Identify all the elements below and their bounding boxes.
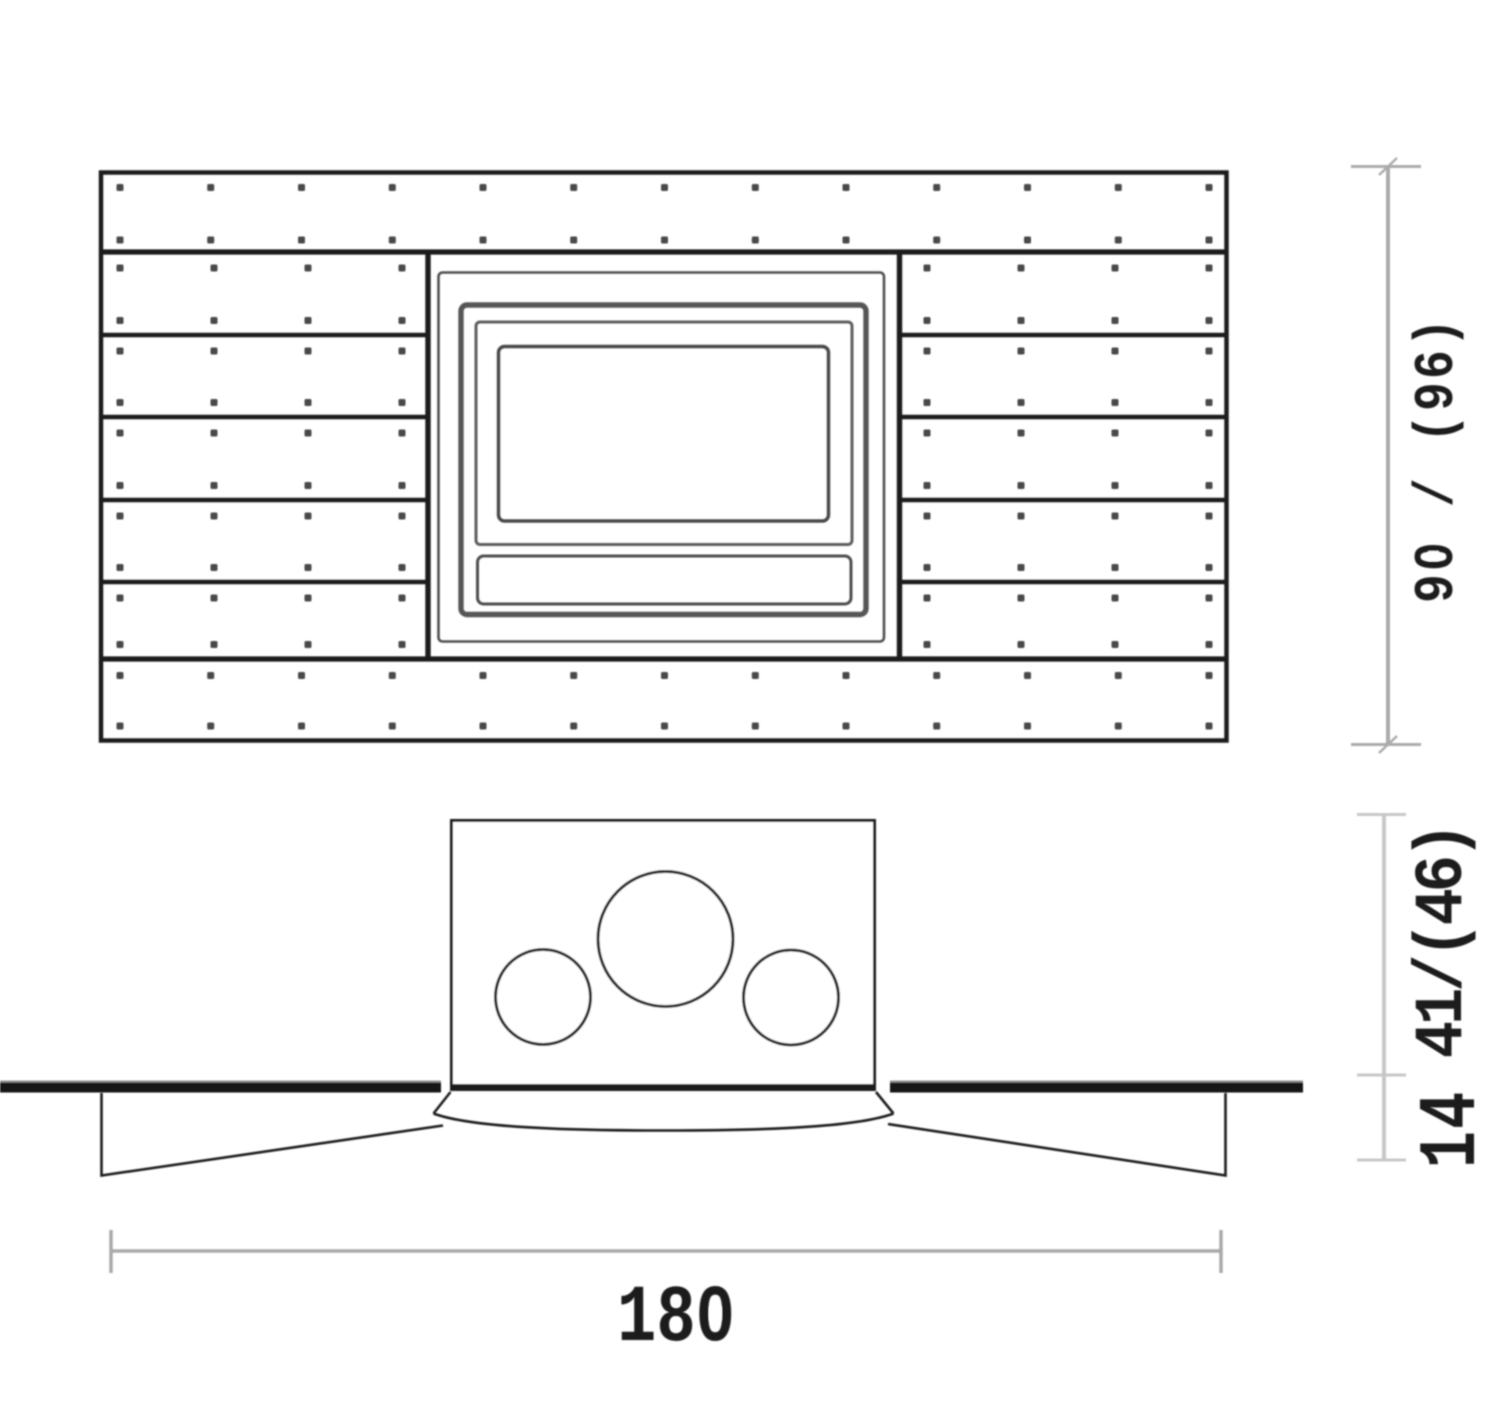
svg-text:14: 14 xyxy=(1406,1090,1498,1168)
svg-text:41/(46): 41/(46) xyxy=(1404,826,1481,1058)
